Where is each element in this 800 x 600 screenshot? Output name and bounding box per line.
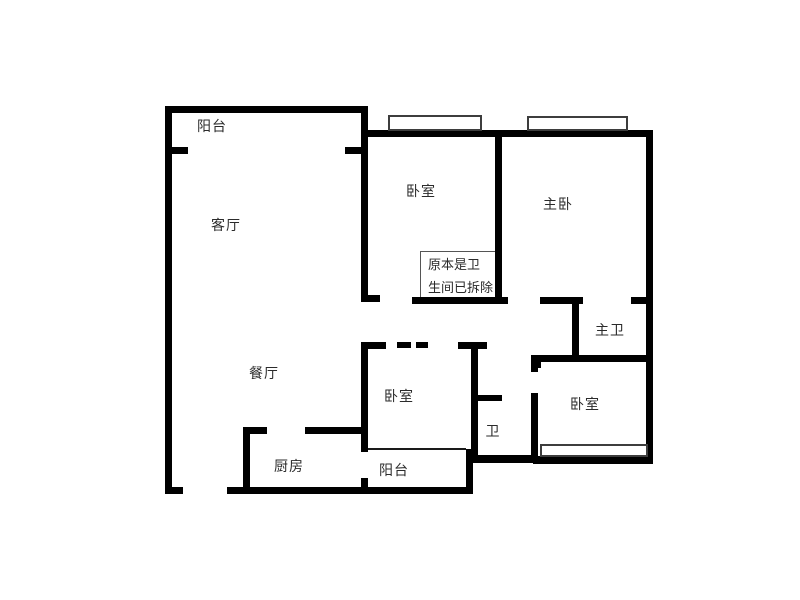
label-kitchen: 厨房 <box>274 460 304 474</box>
label-bedroom-middle: 卧室 <box>384 390 414 404</box>
wall-bedroom-right-top <box>533 355 646 362</box>
label-balcony-top: 阳台 <box>197 120 227 134</box>
wall-kitchen-top-b <box>305 427 365 434</box>
wall-bedroom-right-bottom <box>533 456 653 464</box>
wall-kitchen-left <box>243 428 250 494</box>
label-bath: 卫 <box>486 425 501 439</box>
label-master-bath: 主卫 <box>595 324 625 338</box>
wall-dash-2 <box>416 342 428 348</box>
wall-bath-bottom-step <box>471 455 533 463</box>
wall-bedroom-middle-left <box>361 342 368 452</box>
line-bedroom-balcony-divider <box>368 448 466 450</box>
wall-bath-t-head <box>458 342 487 349</box>
wall-living-right <box>361 113 368 302</box>
wall-bath-door-tick <box>471 395 502 401</box>
note-demolished-bathroom: 原本是卫生间已拆除 <box>420 251 499 300</box>
label-living-room: 客厅 <box>211 219 241 233</box>
wall-masterbath-left <box>572 301 579 358</box>
wall-bedroom-right-left-a <box>531 355 538 372</box>
wall-bottom-outer <box>227 487 473 494</box>
label-dining-room: 餐厅 <box>249 367 279 381</box>
wall-balcony2-left-foot <box>361 478 368 494</box>
wall-kitchen-top-a <box>243 427 267 434</box>
floor-plan: 原本是卫生间已拆除阳台客厅卧室主卧主卫餐厅卧室卫卧室厨房阳台 <box>0 0 800 600</box>
wall-bedroom-divider <box>495 137 502 300</box>
wall-bottom-left-foot <box>165 487 183 494</box>
wall-bath-left <box>471 348 478 457</box>
wall-balcony-divider-left <box>165 147 188 154</box>
wall-hall-top-a <box>412 297 508 304</box>
wall-bedrooms-top <box>361 130 653 137</box>
label-master-bedroom: 主卧 <box>543 198 573 212</box>
window-bedroom-top <box>388 115 482 131</box>
window-bedroom-right <box>540 444 648 457</box>
wall-left-outer <box>165 106 172 494</box>
note-line-1: 原本是卫 <box>428 254 498 277</box>
wall-bedroom-right-left-b <box>531 393 538 457</box>
wall-dash-1 <box>397 342 411 348</box>
wall-top-left-outer <box>165 106 368 113</box>
window-master-bedroom <box>527 116 628 131</box>
label-bedroom-right: 卧室 <box>570 398 600 412</box>
wall-masterbath-door-tick <box>631 297 648 304</box>
label-balcony-bottom: 阳台 <box>379 464 409 478</box>
wall-living-right-foot <box>361 295 380 302</box>
label-bedroom-top: 卧室 <box>406 185 436 199</box>
